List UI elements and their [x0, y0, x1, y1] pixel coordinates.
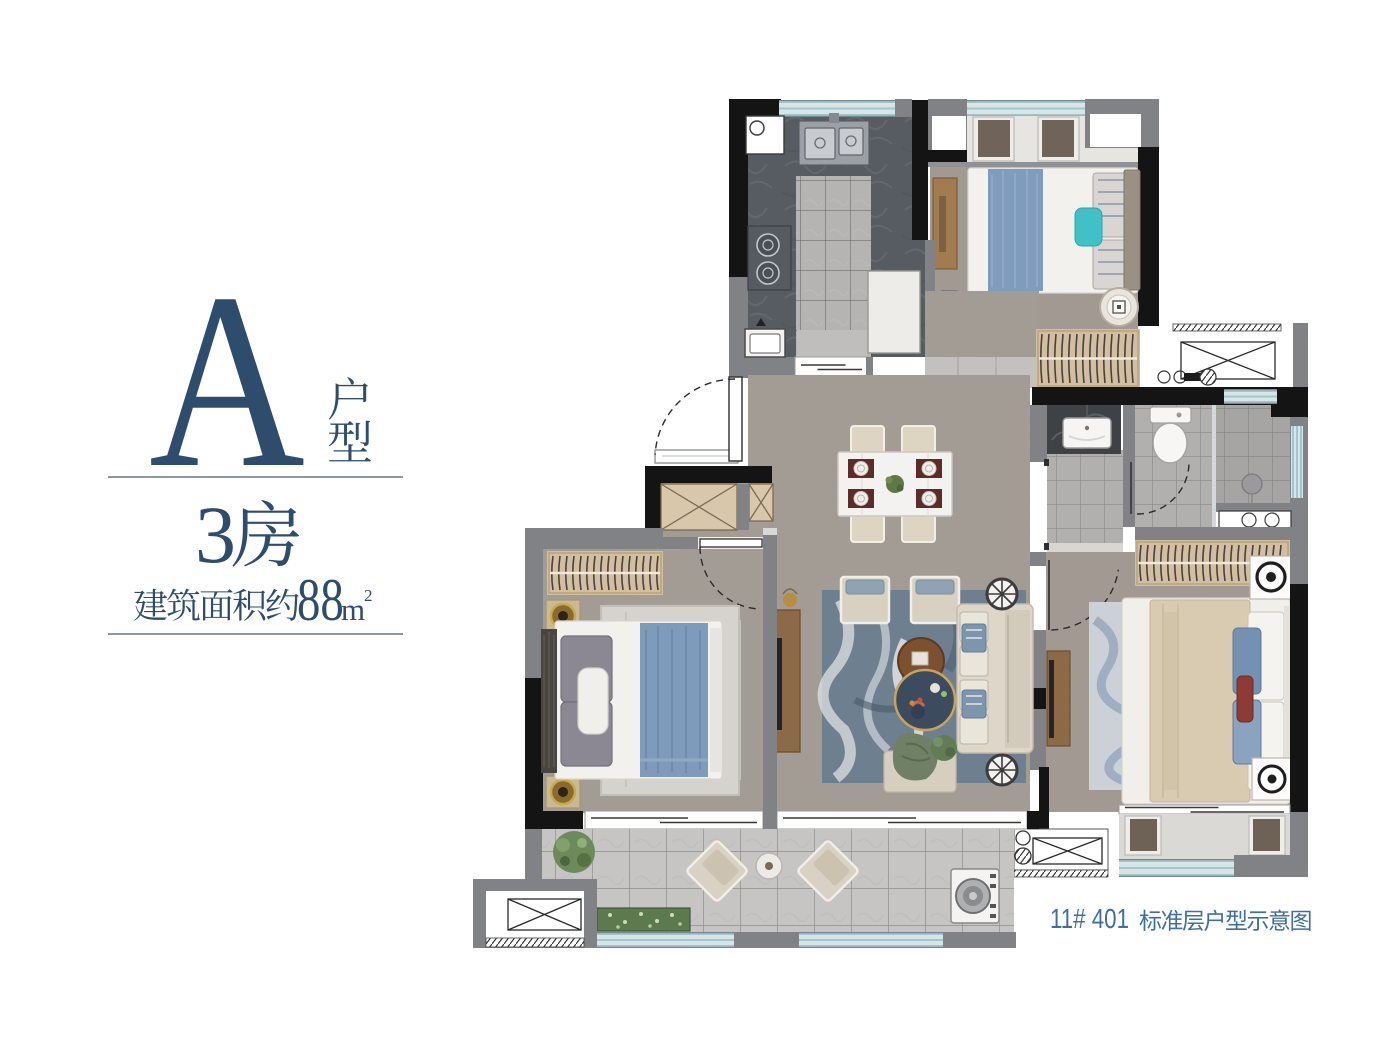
- svg-text:11# 401: 11# 401: [1050, 903, 1129, 934]
- svg-text:m: m: [341, 592, 365, 627]
- svg-text:3: 3: [195, 489, 236, 580]
- svg-text:2: 2: [364, 586, 373, 605]
- svg-text:88: 88: [297, 566, 344, 633]
